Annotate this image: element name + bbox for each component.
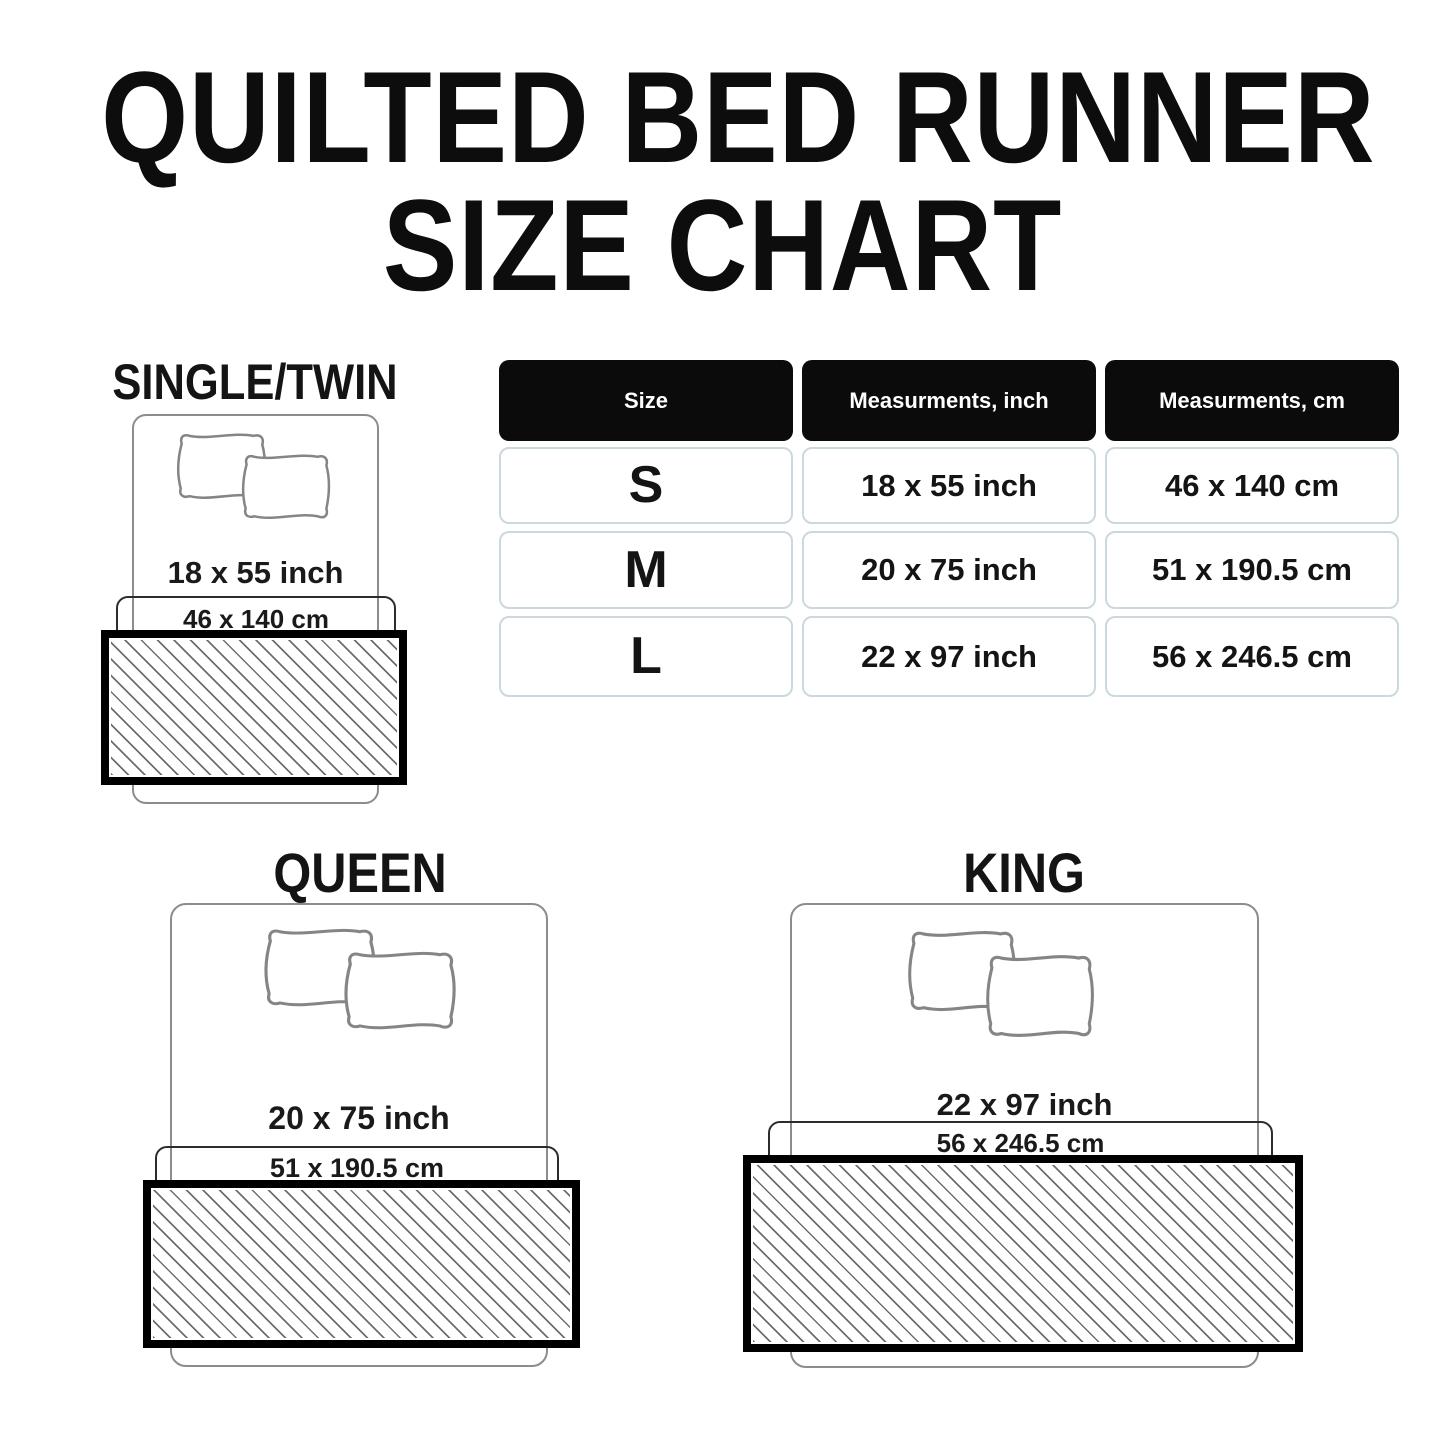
table-cell-size-s: S [499,447,793,524]
queen-section-label: QUEEN [203,845,516,901]
table-header-measurements-inch: Measurments, inch [802,360,1096,441]
size-chart-infographic: QUILTED BED RUNNER SIZE CHART SINGLE/TWI… [0,0,1445,1445]
page-title-line2: SIZE CHART [101,180,1344,310]
king-cm-label: 56 x 246.5 cm [768,1130,1273,1156]
table-cell-inch-s: 18 x 55 inch [802,447,1096,524]
queen-runner-hatch-pattern [153,1190,570,1338]
table-cell-cm-l: 56 x 246.5 cm [1105,616,1399,697]
single-twin-section-label: SINGLE/TWIN [107,357,403,407]
table-cell-cm-s: 46 x 140 cm [1105,447,1399,524]
page-title-line1: QUILTED BED RUNNER [101,52,1344,182]
single-twin-inch-label: 18 x 55 inch [132,557,379,588]
table-cell-cm-m: 51 x 190.5 cm [1105,531,1399,609]
table-cell-size-m: M [499,531,793,609]
single-twin-runner-hatch-pattern [111,640,397,775]
queen-pillow-right-icon [337,949,463,1034]
king-runner-hatch-pattern [753,1165,1293,1342]
table-cell-size-l: L [499,616,793,697]
queen-cm-label: 51 x 190.5 cm [155,1155,559,1182]
table-cell-inch-l: 22 x 97 inch [802,616,1096,697]
king-section-label: KING [860,845,1189,901]
single-twin-cm-label: 46 x 140 cm [116,606,396,632]
table-header-measurements-cm: Measurments, cm [1105,360,1399,441]
queen-bed-runner [143,1180,580,1348]
table-cell-inch-m: 20 x 75 inch [802,531,1096,609]
single-twin-pillow-right-icon [236,452,336,523]
king-pillow-right-icon [979,952,1101,1042]
queen-inch-label: 20 x 75 inch [170,1102,548,1134]
single-twin-bed-runner [101,630,407,785]
king-bed-runner [743,1155,1303,1352]
table-header-size: Size [499,360,793,441]
king-inch-label: 22 x 97 inch [790,1089,1259,1120]
